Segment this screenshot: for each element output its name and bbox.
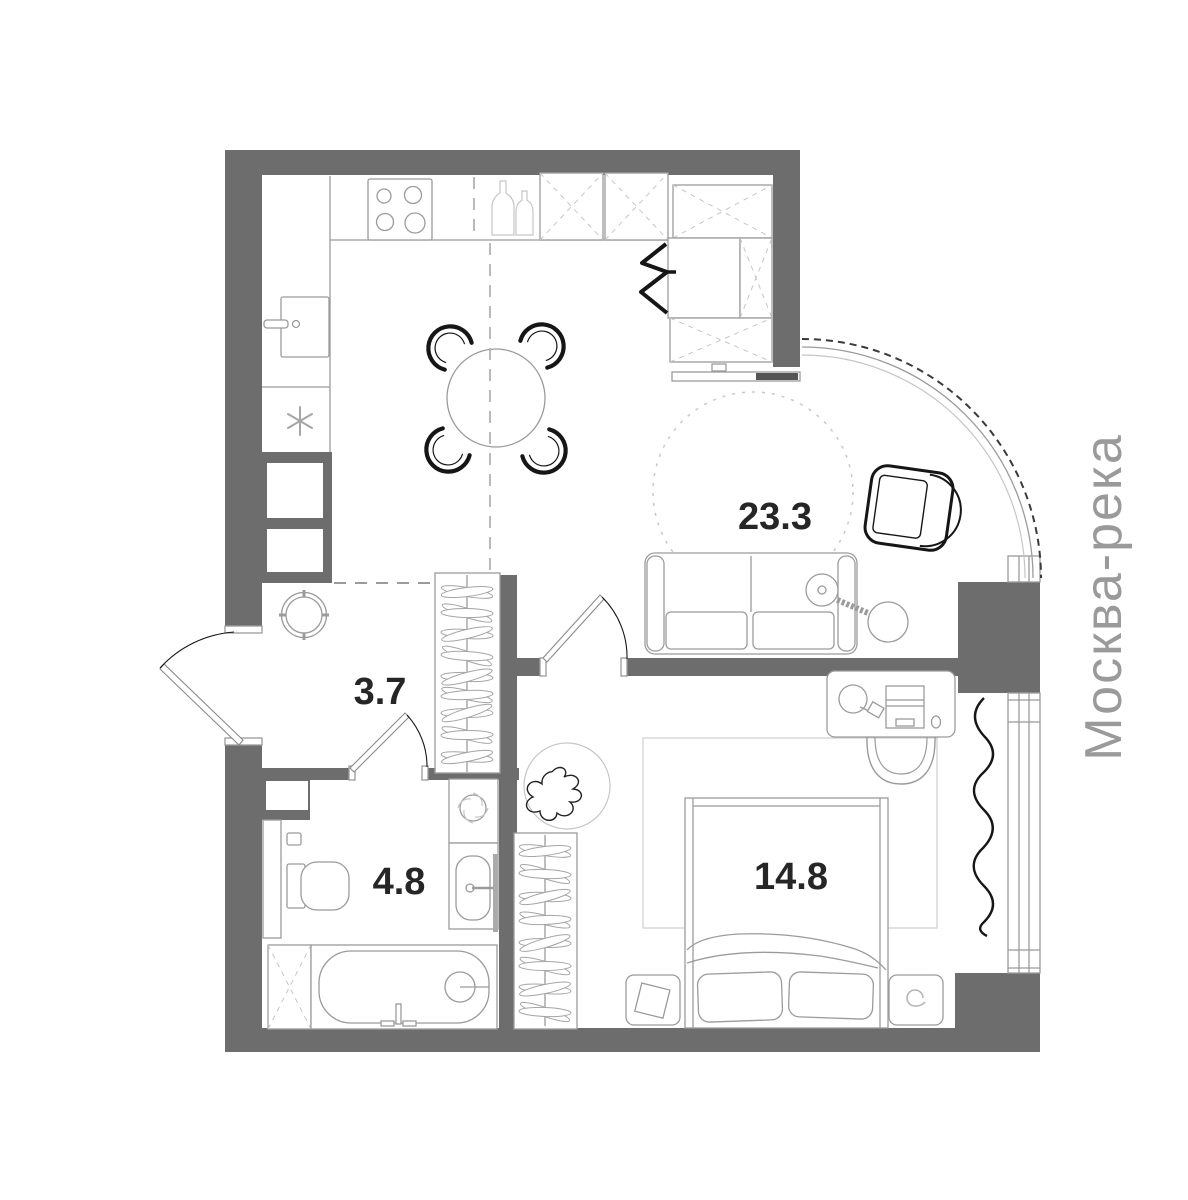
bedroom-door-leaf	[543, 595, 604, 662]
area-label-bathroom: 4.8	[373, 861, 426, 903]
area-label-hallway: 3.7	[354, 671, 407, 713]
bedroom-wardrobe-icon	[514, 833, 577, 1029]
pouf-icon	[279, 590, 329, 640]
bedroom-door	[540, 595, 627, 676]
bath-cabinet-x	[268, 945, 311, 1029]
bathtub-icon	[311, 945, 497, 1029]
plant-icon	[524, 743, 610, 829]
stove-icon	[368, 179, 432, 240]
kitchen-cabinets-x	[540, 173, 668, 240]
area-label-living: 23.3	[738, 496, 812, 538]
entry-door	[160, 626, 262, 745]
armchair-icon	[863, 464, 966, 554]
hall-wardrobe-icon	[435, 573, 500, 773]
walls	[225, 150, 1040, 1052]
floor-plan-image: 23.3 3.7 4.8 14.8 Москва-река	[0, 0, 1188, 1200]
area-label-bedroom: 14.8	[754, 856, 828, 898]
nightstand-right-icon	[889, 975, 943, 1025]
bathroom-sink-icon	[449, 843, 498, 932]
floor-plan-page: 23.3 3.7 4.8 14.8 Москва-река	[0, 0, 1188, 1200]
pillow-icon	[788, 972, 874, 1020]
washing-machine-icon	[449, 779, 498, 843]
bed-icon	[685, 798, 888, 1028]
towel-rail-icon	[493, 854, 498, 932]
wine-bottles-icon	[492, 181, 533, 235]
pipe-shaft	[263, 820, 281, 938]
fridge-snowflake-icon	[288, 407, 312, 435]
toilet-icon	[287, 833, 349, 910]
bathroom-door	[349, 713, 428, 780]
desk-chair-icon	[867, 737, 935, 784]
tv-icon	[672, 372, 800, 381]
watermark-river-label: Москва-река	[1075, 433, 1133, 761]
curtain-icon	[974, 698, 993, 936]
kitchen-sink-icon	[264, 297, 329, 357]
desk-icon	[827, 671, 955, 737]
dining-table-icon	[447, 349, 545, 447]
bathroom-door-leaf	[350, 713, 409, 772]
pillow-icon	[697, 972, 783, 1023]
closet-cabinets-x	[668, 185, 772, 371]
nightstand-left-icon	[626, 975, 680, 1025]
